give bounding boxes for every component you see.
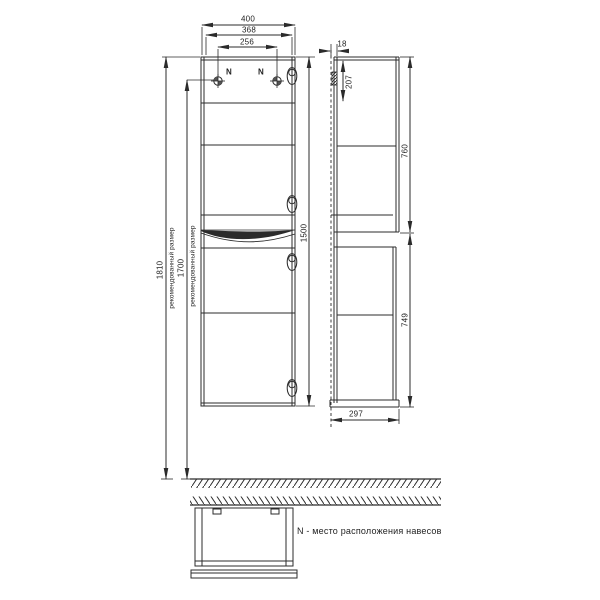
dim-mount-from-top-label: 207 (345, 75, 354, 89)
dim-upper-section-label: 760 (401, 144, 410, 158)
wall-bracket-icon (332, 72, 337, 85)
dim-wall-offset-label: 18 (337, 40, 346, 49)
cabinet-dimension-drawing: 400 368 256 1500 1810 рекомендованный ра… (0, 0, 600, 600)
mount-bracket-icon (213, 509, 221, 514)
dim-door-width-label: 368 (242, 26, 256, 35)
dim-height-label: 1500 (300, 224, 309, 243)
side-view-dimensions (319, 44, 414, 424)
drawing-linework (0, 0, 600, 600)
dim-lower-section-label: 749 (401, 313, 410, 327)
mount-n-label: N (226, 68, 232, 77)
dim-mount-spacing-label: 256 (240, 38, 254, 47)
mount-point-icon (211, 74, 225, 88)
dim-depth-label: 297 (349, 410, 363, 419)
mount-n-label: N (258, 68, 264, 77)
floor-hatch (190, 479, 441, 488)
mount-legend-text: N - место расположения навесов (297, 526, 442, 536)
wall-hatch (190, 497, 441, 506)
recommended-size-label: рекомендованный размер (169, 227, 176, 308)
mount-point-icon (270, 74, 284, 88)
recommended-size-label: рекомендованный размер (190, 225, 197, 306)
handle-wave-icon (201, 230, 295, 242)
side-view-outline (330, 50, 399, 427)
dim-install-top-label: 1810 (156, 261, 165, 280)
mount-point-icons (211, 74, 284, 88)
dim-install-mount-label: 1700 (177, 259, 186, 278)
mount-bracket-icon (271, 509, 279, 514)
top-view-outline (191, 508, 297, 578)
dim-width-label: 400 (241, 15, 255, 24)
door-front-top-view (191, 570, 297, 578)
